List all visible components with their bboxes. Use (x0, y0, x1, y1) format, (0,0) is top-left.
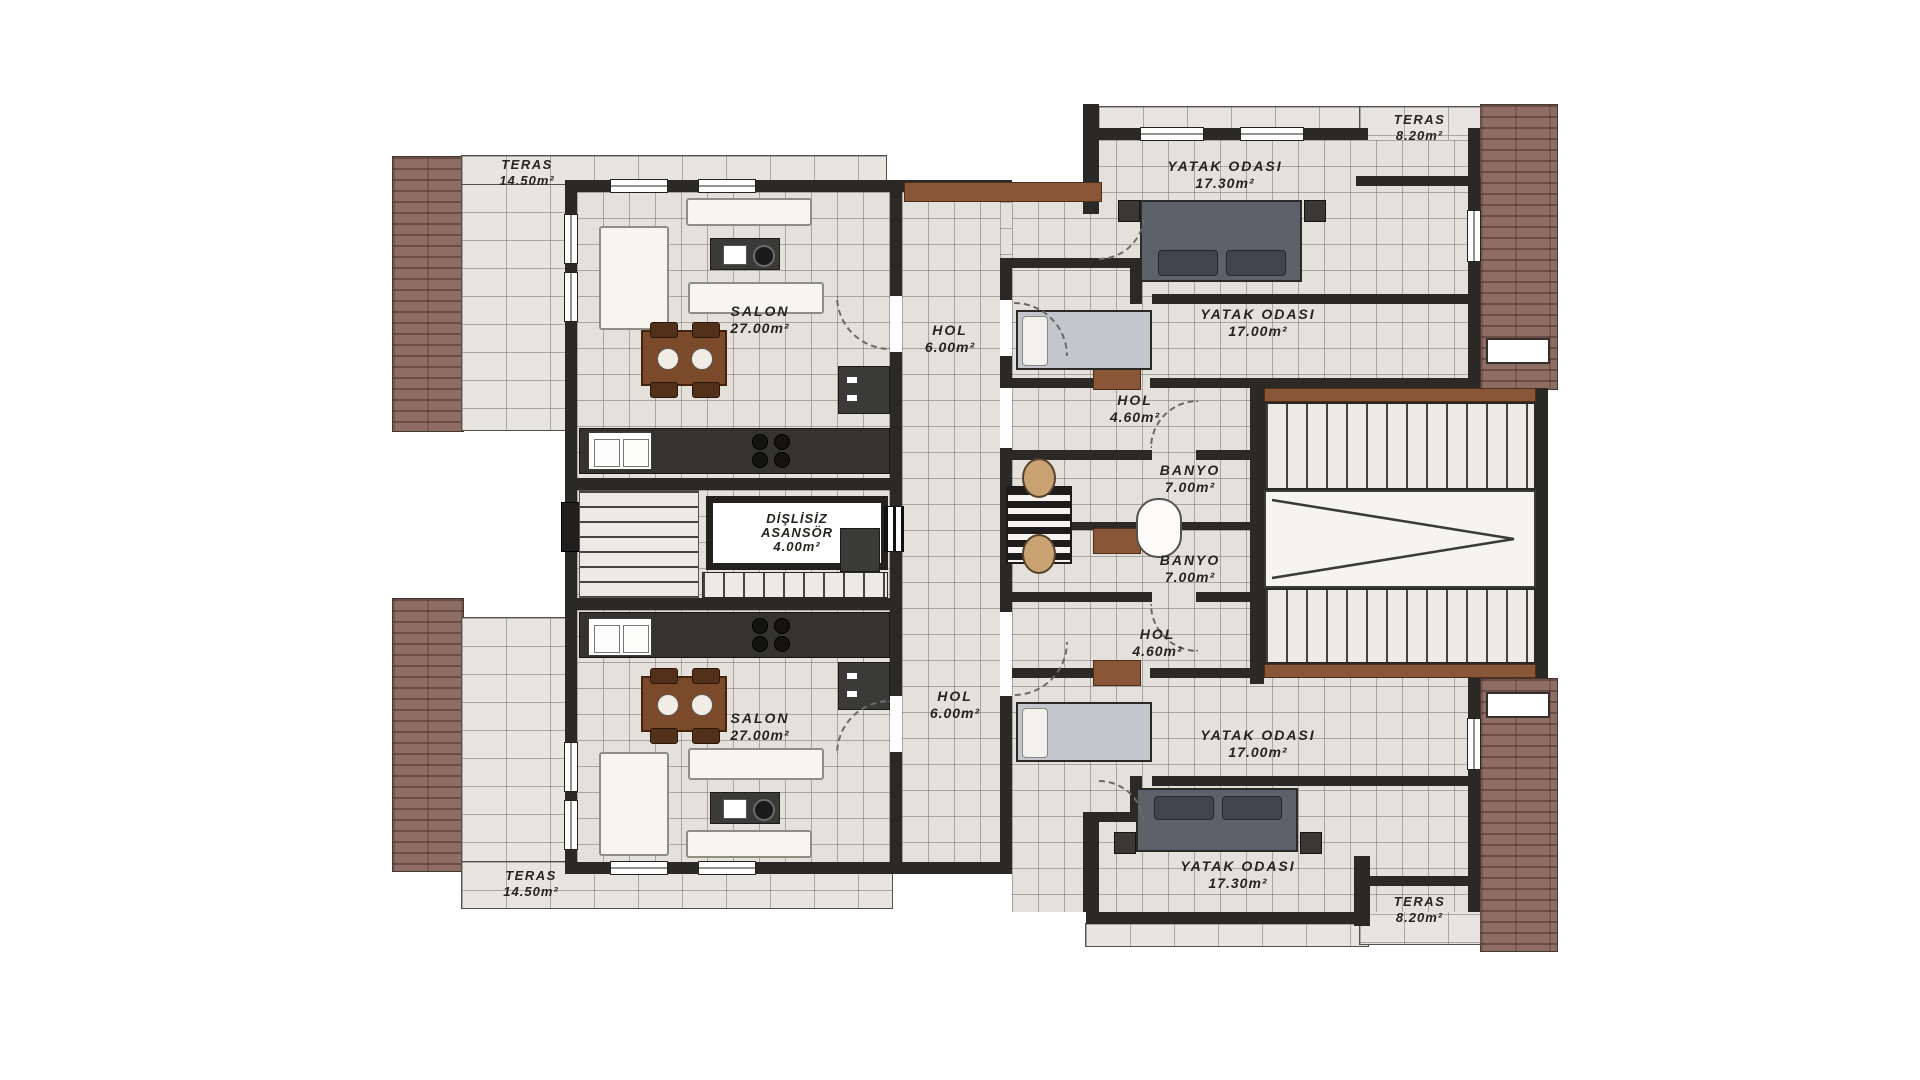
wall-segment (1012, 378, 1105, 388)
label-salon-lower: SALON 27.00m² (695, 710, 825, 744)
plate (691, 348, 713, 370)
stair-wood-bottom (1264, 664, 1536, 678)
wall-segment (1012, 258, 1083, 268)
speaker (753, 799, 775, 821)
wall-stair-east (1536, 388, 1548, 678)
wall-segment (890, 752, 902, 874)
terrace-se-band (1086, 924, 1368, 946)
kitchen-sink (588, 432, 652, 470)
chair (650, 668, 678, 684)
tv-screen (723, 799, 747, 819)
wall-segment (1000, 258, 1012, 300)
elevator-doors (884, 506, 904, 552)
window (564, 214, 578, 264)
wall-bedroom4-south (1086, 912, 1368, 924)
wall-stair-west (1250, 378, 1264, 684)
wall-segment (1000, 696, 1012, 874)
wall-bedroom-divider-bottom (1152, 776, 1468, 786)
toilet-lower (1022, 534, 1056, 574)
pillow (1022, 708, 1048, 758)
stair-wood-top (1264, 388, 1536, 402)
floor-hall-column (902, 192, 1000, 862)
pillow (1158, 250, 1218, 276)
stove-burner (774, 618, 790, 634)
window (1140, 127, 1204, 141)
chair (692, 668, 720, 684)
label-teras-se: TERAS 8.20m² (1362, 894, 1477, 925)
terrace-ne-band (1099, 107, 1360, 128)
label-teras-ne: TERAS 8.20m² (1362, 112, 1477, 143)
sofa (686, 830, 812, 858)
fridge-handle (847, 673, 857, 679)
roof-vent-top (1486, 338, 1550, 364)
label-yatak-odasi-3: YATAK ODASI 17.00m² (1168, 727, 1348, 761)
label-yatak-odasi-1: YATAK ODASI 17.30m² (1135, 158, 1315, 192)
label-hol-kucuk-ust: HOL 4.60m² (1085, 392, 1185, 426)
wall-east-bottom (1468, 678, 1480, 912)
l-sofa (599, 752, 669, 856)
chair (650, 728, 678, 744)
wall-segment (1356, 176, 1480, 186)
label-banyo-alt: BANYO 7.00m² (1135, 552, 1245, 586)
label-yatak-odasi-2: YATAK ODASI 17.00m² (1168, 306, 1348, 340)
wall-core-top (565, 478, 890, 490)
stove-burner (752, 618, 768, 634)
roof-strip-right-bottom (1480, 678, 1558, 952)
sink-basin (594, 625, 620, 653)
nightstand (1300, 832, 1322, 854)
stove-burner (752, 636, 768, 652)
nightstand (1304, 200, 1326, 222)
toilet-upper (1022, 458, 1056, 498)
label-teras-sw: TERAS 14.50m² (466, 868, 596, 899)
fridge-handle (847, 691, 857, 697)
window (564, 272, 578, 322)
stove-burner (774, 452, 790, 468)
sink-basin (623, 439, 649, 467)
wardrobe (1093, 660, 1141, 686)
stove-burner (752, 452, 768, 468)
tv-unit (710, 238, 780, 270)
stairs-core-left (579, 490, 699, 598)
sink-basin (594, 439, 620, 467)
pillow (1226, 250, 1286, 276)
chair (650, 322, 678, 338)
stairs-flight-down (1264, 588, 1536, 664)
stair-direction-arrow (1266, 492, 1534, 586)
fridge (838, 366, 890, 414)
window (1467, 718, 1481, 770)
roof-vent-bottom (1486, 692, 1550, 718)
window (698, 179, 756, 193)
pillow (1222, 796, 1282, 820)
speaker (753, 245, 775, 267)
wall-segment (1150, 378, 1480, 388)
wall-segment (1000, 356, 1012, 388)
chair (650, 382, 678, 398)
terrace-nw-strip (462, 156, 569, 430)
floor-plan: DİŞLİSİZ ASANSÖR 4.00m² (0, 0, 1920, 1080)
kitchen-sink (588, 618, 652, 656)
chair (692, 382, 720, 398)
l-sofa (599, 226, 669, 330)
wall-segment (1083, 822, 1099, 912)
window (610, 179, 668, 193)
window (698, 861, 756, 875)
wardrobe (1093, 528, 1141, 554)
pillow (1154, 796, 1214, 820)
double-bed-top (1140, 200, 1302, 282)
tv-screen (723, 245, 747, 265)
window (1240, 127, 1304, 141)
label-teras-nw: TERAS 14.50m² (462, 157, 592, 188)
stairs-flight-up (1264, 402, 1536, 490)
window (564, 800, 578, 850)
wall-segment (1012, 592, 1152, 602)
fridge-handle (847, 377, 857, 383)
exterior-gap (1012, 140, 1086, 184)
label-hol-upper: HOL 6.00m² (900, 322, 1000, 356)
bathroom-sink (1136, 498, 1182, 558)
wall-segment (890, 180, 902, 296)
sink-basin (623, 625, 649, 653)
stove-burner (774, 636, 790, 652)
nightstand (1114, 832, 1136, 854)
wall-bedroom-divider-top (1152, 294, 1468, 304)
window (564, 742, 578, 792)
label-yatak-odasi-4: YATAK ODASI 17.30m² (1148, 858, 1328, 892)
window (1467, 210, 1481, 262)
label-hol-lower: HOL 6.00m² (905, 688, 1005, 722)
stove-burner (752, 434, 768, 450)
dining-table-upper (641, 330, 727, 386)
wall-segment (1356, 876, 1480, 886)
label-hol-kucuk-alt: HOL 4.60m² (1105, 626, 1210, 660)
label-banyo-ust: BANYO 7.00m² (1135, 462, 1245, 496)
plate (657, 694, 679, 716)
sofa (688, 748, 824, 780)
roof-strip-left-top (392, 156, 464, 432)
window (610, 861, 668, 875)
wall-core-bottom (565, 598, 890, 610)
stair-landing (1264, 490, 1536, 588)
tv-unit (710, 792, 780, 824)
single-bed-lower (1016, 702, 1152, 762)
stairs-core-bottom (702, 572, 888, 598)
stove-burner (774, 434, 790, 450)
sofa (686, 198, 812, 226)
shaft-box (840, 528, 880, 572)
fridge-handle (847, 395, 857, 401)
roof-strip-left-bottom (392, 598, 464, 872)
wood-lintel-entry (904, 182, 1102, 202)
double-bed-bottom (1136, 788, 1298, 852)
plate (657, 348, 679, 370)
label-salon-upper: SALON 27.00m² (695, 303, 825, 337)
wall-bedroom1-north (1086, 128, 1368, 140)
